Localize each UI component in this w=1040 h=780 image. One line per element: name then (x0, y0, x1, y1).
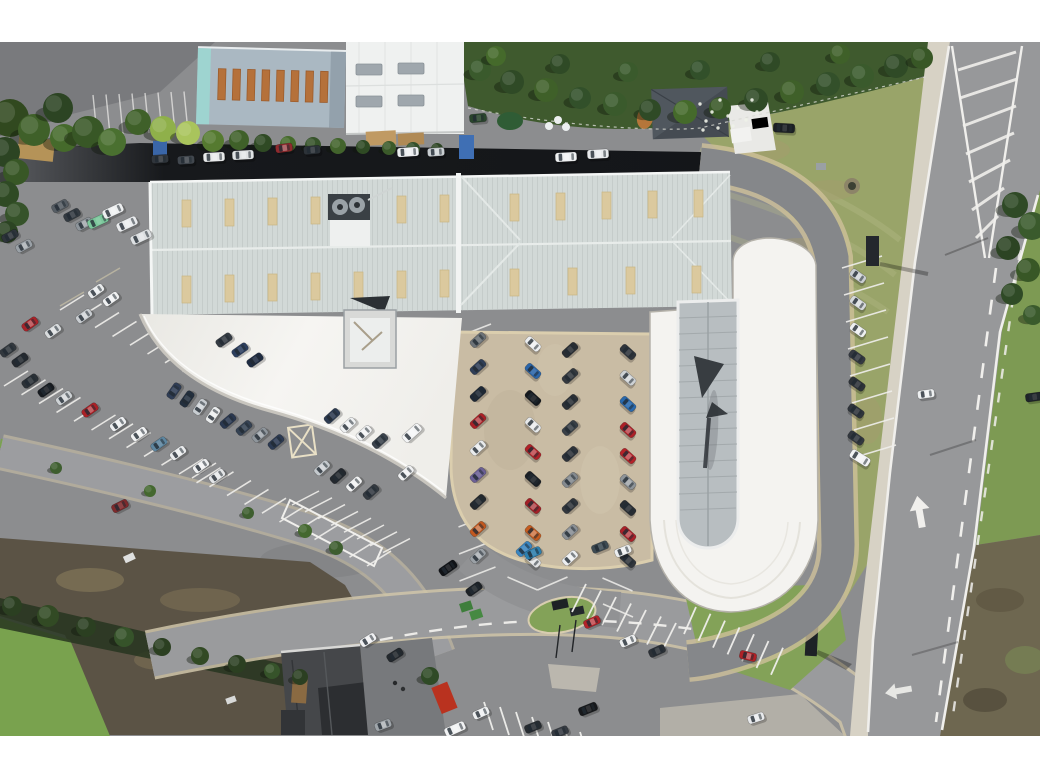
scrub-patch (976, 588, 1024, 612)
car (177, 155, 196, 167)
tree-highlight (1025, 307, 1036, 318)
tree-highlight (488, 48, 499, 59)
flower-dot (726, 114, 729, 117)
flower-dot (716, 126, 719, 129)
houses (281, 638, 458, 735)
tree-highlight (7, 204, 20, 217)
tree-highlight (21, 116, 39, 134)
main-building (150, 172, 732, 315)
green-equipment (497, 112, 523, 130)
flower-dot (710, 110, 713, 113)
flower-dot (736, 106, 739, 109)
person (401, 687, 405, 691)
person (393, 681, 397, 685)
car (427, 147, 446, 159)
tree-highlight (178, 123, 191, 136)
tree-highlight (51, 463, 58, 470)
tree-highlight (75, 118, 93, 136)
flower-dot (701, 128, 704, 131)
van (397, 147, 421, 160)
tree-highlight (1020, 214, 1035, 229)
tree-highlight (886, 56, 899, 69)
tree-highlight (1004, 194, 1018, 208)
scrub-patch (963, 688, 1007, 712)
tree-highlight (193, 648, 203, 658)
tree-highlight (331, 139, 340, 148)
tree-highlight (692, 62, 703, 73)
car (151, 154, 170, 166)
tree-highlight (293, 670, 302, 679)
hvac-fan-hub (354, 202, 360, 208)
tree-highlight (423, 668, 433, 678)
flower-dot (704, 119, 707, 122)
white-roof-building (346, 42, 464, 134)
van (203, 152, 227, 165)
white-sack (554, 116, 562, 124)
tree-highlight (4, 598, 15, 609)
tree-highlight (243, 508, 250, 515)
tree-highlight (145, 486, 152, 493)
tree-highlight (100, 130, 115, 145)
tree-highlight (127, 111, 141, 125)
hvac-plinth (330, 218, 370, 246)
flower-dot (698, 102, 701, 105)
concrete-apron (548, 664, 600, 692)
tree-highlight (471, 61, 483, 73)
letterbox-top (0, 0, 1040, 42)
tree-highlight (116, 629, 127, 640)
tree-highlight (256, 135, 266, 145)
tree-highlight (762, 54, 773, 65)
tree-highlight (620, 64, 631, 75)
flower-dot (755, 110, 758, 113)
tree-highlight (675, 102, 688, 115)
tree-highlight (818, 74, 831, 87)
lot-patch (56, 568, 124, 592)
aerial-photo-frame (0, 0, 1040, 780)
tree-highlight (330, 542, 338, 550)
tree-highlight (1018, 260, 1031, 273)
shed-roof (281, 710, 305, 735)
tree-highlight (357, 141, 365, 149)
letterbox-bottom (0, 736, 1040, 780)
white-canopy-tent (730, 127, 752, 144)
white-sack (562, 123, 570, 131)
tree-highlight (204, 132, 216, 144)
aerial-photo (0, 0, 1040, 780)
tree-highlight (265, 664, 274, 673)
van (587, 149, 611, 162)
flower-dot (731, 124, 734, 127)
tree-highlight (78, 619, 89, 630)
totem-sign (866, 236, 879, 266)
tree-highlight (46, 95, 63, 112)
tree-highlight (231, 132, 242, 143)
tree-highlight (299, 525, 307, 533)
tree-highlight (155, 639, 165, 649)
flower-dot (718, 98, 721, 101)
tree-highlight (832, 46, 843, 57)
tree-highlight (230, 656, 240, 666)
van (773, 123, 797, 136)
tree-highlight (1003, 285, 1015, 297)
ground-feature-center (848, 182, 856, 190)
atrium-glass-roof (678, 300, 738, 548)
car (303, 145, 322, 158)
tree-highlight (571, 89, 583, 101)
photo-content (0, 42, 1040, 765)
tree-highlight (641, 101, 653, 113)
lot-patch (160, 588, 240, 612)
tree-highlight (5, 161, 19, 175)
tree-highlight (552, 56, 563, 67)
hvac-fan-hub (337, 204, 343, 210)
gravel-mottle (580, 446, 620, 514)
van (232, 150, 256, 163)
tree-highlight (852, 66, 865, 79)
tree-highlight (913, 49, 925, 61)
tree-highlight (536, 80, 549, 93)
car (469, 113, 488, 126)
blue-roof-building (196, 46, 346, 128)
tree-highlight (782, 82, 795, 95)
tree-highlight (383, 142, 391, 150)
white-sack (545, 122, 553, 130)
tree-highlight (502, 72, 515, 85)
flower-dot (750, 98, 753, 101)
tree-highlight (998, 238, 1011, 251)
tree-highlight (152, 118, 166, 132)
tree-highlight (39, 607, 51, 619)
van (555, 152, 579, 165)
blue-skip (459, 135, 474, 159)
flower-dot (744, 118, 747, 121)
tree-highlight (605, 94, 618, 107)
drain-cover (816, 163, 826, 170)
